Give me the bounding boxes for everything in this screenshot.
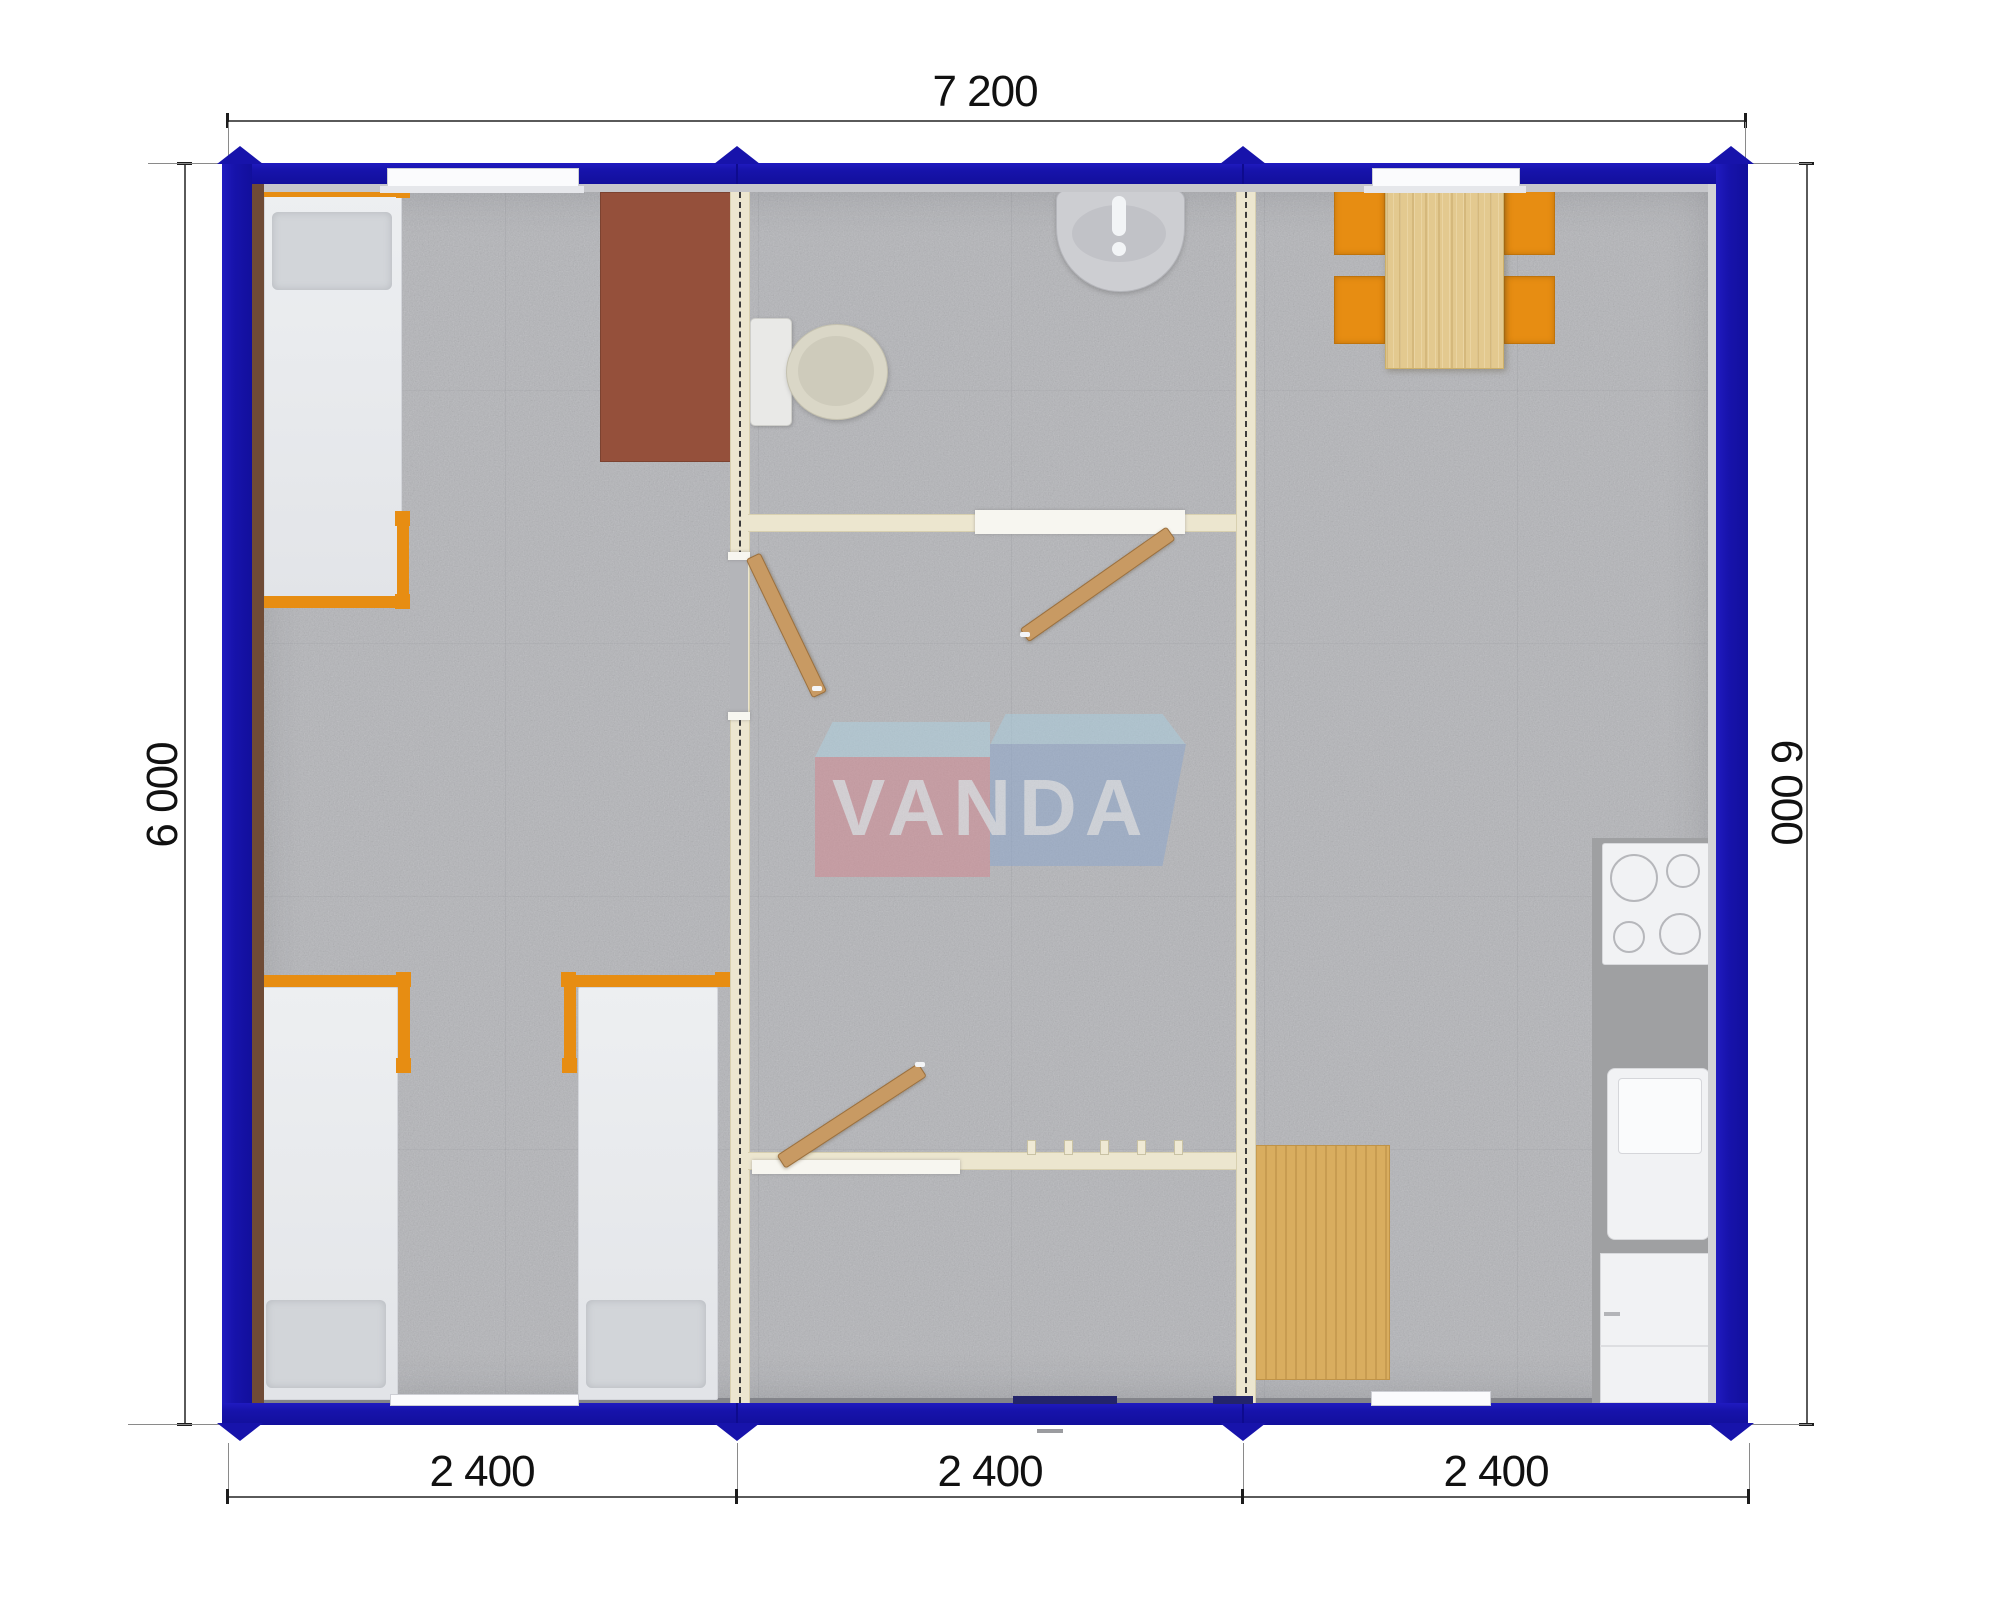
door-threshold — [728, 712, 750, 720]
faucet — [1112, 196, 1126, 236]
entrance-door-bottom — [1013, 1396, 1117, 1404]
partition-wall-left — [730, 192, 750, 1403]
bed-frame-knob — [395, 511, 410, 526]
window-bottom-left — [390, 1394, 579, 1406]
partition-centerline — [1245, 192, 1247, 1403]
corner-lug — [217, 1423, 263, 1441]
module-seam — [1242, 1403, 1244, 1425]
bed-frame-bar — [250, 596, 410, 608]
corner-lug — [714, 146, 760, 164]
dimension-right-height: 6 000 — [1764, 692, 1808, 892]
dining-chair — [1504, 276, 1555, 344]
wall-lining-right — [1708, 184, 1716, 1403]
bed-frame-post — [564, 987, 576, 1067]
bed-pillow — [586, 1300, 706, 1388]
dining-chair — [1334, 276, 1385, 344]
tick — [1747, 1489, 1750, 1504]
brown-wardrobe — [600, 192, 732, 462]
dining-chair — [1504, 187, 1555, 255]
outer-wall-left — [222, 163, 252, 1425]
bed-pillow — [272, 212, 392, 290]
extension-line — [148, 163, 222, 164]
kitchen-cabinet — [1600, 1253, 1710, 1403]
extension-line — [128, 1424, 222, 1425]
bed-frame-knob — [396, 1058, 411, 1073]
bed-pillow — [266, 1300, 386, 1388]
partition-wall-right — [1236, 192, 1256, 1403]
window-top-left — [387, 168, 579, 188]
dimension-bottom-module-2: 2 400 — [885, 1450, 1095, 1494]
bed-frame-knob — [561, 972, 576, 987]
bed-frame-knob — [562, 1058, 577, 1073]
burner — [1613, 921, 1645, 953]
extension-line — [1748, 163, 1812, 164]
door-handle — [812, 686, 822, 691]
burner — [1659, 913, 1701, 955]
drain-dot — [1112, 242, 1126, 256]
corner-lug — [1220, 1423, 1266, 1441]
dining-chair — [1334, 187, 1385, 255]
bathroom-door-threshold — [975, 510, 1185, 534]
cabinet-divider — [1600, 1345, 1708, 1347]
module-seam — [736, 163, 738, 184]
tick — [1241, 1489, 1244, 1504]
window-bottom-right — [1371, 1391, 1491, 1406]
door-opening — [730, 560, 748, 712]
wood-floor-mat — [1254, 1145, 1390, 1380]
tick — [735, 1489, 738, 1504]
cabinet-handle — [1604, 1312, 1620, 1316]
corner-lug — [1708, 146, 1754, 164]
module-seam — [736, 1403, 738, 1425]
coat-hook — [1137, 1140, 1146, 1155]
dimension-left-height: 6 000 — [141, 695, 185, 895]
dimension-bottom-module-3: 2 400 — [1391, 1450, 1601, 1494]
bed-frame-bar — [563, 975, 729, 987]
bed-frame-bar — [245, 975, 411, 987]
dimension-line-right — [1806, 163, 1808, 1425]
coat-hook — [1064, 1140, 1073, 1155]
kitchen-sink-basin — [1618, 1078, 1702, 1154]
window-sill — [380, 186, 584, 193]
floor-plan-canvas: 7 200 6 000 6 000 2 400 2 400 2 400 — [0, 0, 2000, 1597]
step-mark — [1037, 1429, 1063, 1433]
dimension-line-bottom — [228, 1496, 1750, 1498]
outer-wall-right — [1716, 163, 1748, 1425]
window-sill — [1364, 186, 1526, 193]
dimension-line-top — [228, 120, 1746, 122]
coat-hook — [1100, 1140, 1109, 1155]
burner — [1610, 854, 1658, 902]
outer-wall-bottom — [222, 1403, 1748, 1425]
tick — [226, 1489, 229, 1504]
coat-hook — [1027, 1140, 1036, 1155]
corner-lug — [714, 1423, 760, 1441]
entrance-door-bottom — [1213, 1396, 1253, 1404]
door-handle — [915, 1062, 925, 1067]
wall-lining-left — [252, 184, 264, 1403]
door-handle — [1020, 632, 1030, 637]
partition-centerline — [739, 192, 741, 1403]
window-top-right — [1372, 168, 1520, 188]
coat-hook — [1174, 1140, 1183, 1155]
bed-frame-knob — [715, 972, 730, 987]
bed-frame-knob — [396, 972, 411, 987]
burner — [1666, 854, 1700, 888]
dimension-top-width: 7 200 — [880, 70, 1090, 114]
dining-table — [1385, 181, 1504, 369]
bed-frame-knob — [395, 594, 410, 609]
corner-lug — [1220, 146, 1266, 164]
module-seam — [1242, 163, 1244, 184]
corner-lug — [217, 146, 263, 164]
dimension-bottom-module-1: 2 400 — [377, 1450, 587, 1494]
dimension-line-left — [184, 163, 186, 1425]
extension-line — [1748, 1424, 1812, 1425]
toilet-bowl-inner — [798, 336, 874, 406]
bed-frame-post — [398, 987, 410, 1067]
corner-lug — [1708, 1423, 1754, 1441]
